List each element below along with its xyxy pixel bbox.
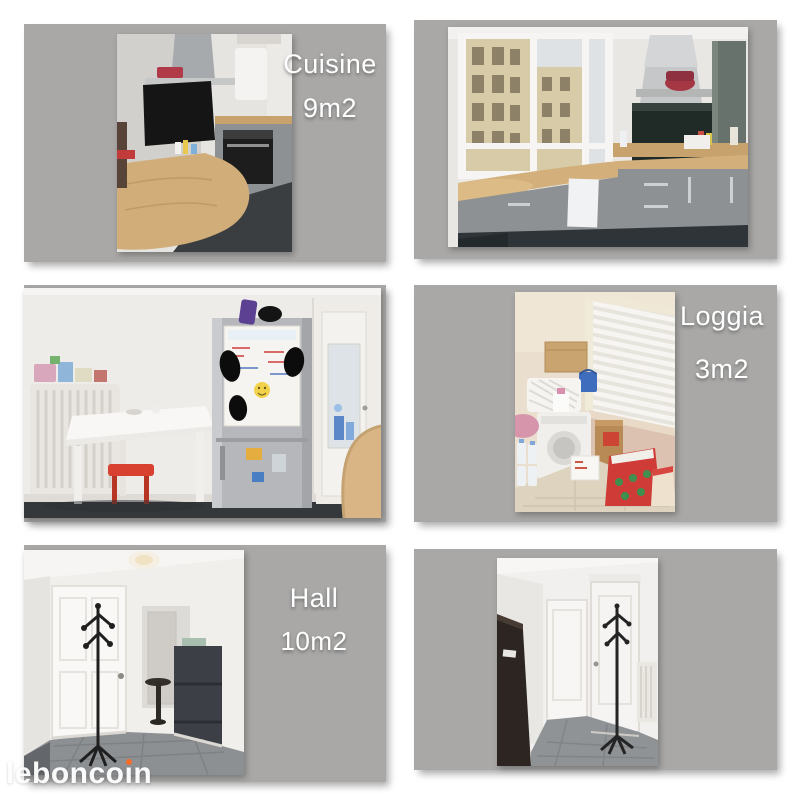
- cell-hall-2: [414, 549, 777, 770]
- room-name: Loggia: [680, 301, 764, 331]
- room-area: 9m2: [274, 95, 386, 122]
- room-name: Hall: [290, 583, 339, 613]
- cell-cuisine-2: [414, 20, 777, 259]
- room-name: Cuisine: [283, 49, 377, 79]
- hall-entrance-photo: [497, 558, 658, 766]
- label-loggia: Loggia 3m2: [672, 303, 772, 383]
- room-area: 3m2: [672, 356, 772, 383]
- kitchen-fridge-photo: [24, 288, 381, 518]
- cell-kitchen-dining: [24, 285, 386, 522]
- kitchen-counter-photo: [117, 34, 292, 252]
- cell-cuisine-1: Cuisine 9m2: [24, 24, 386, 262]
- cell-hall-1: Hall 10m2: [24, 545, 386, 782]
- watermark-text-end: n: [133, 757, 152, 790]
- watermark-text-start: lebonco: [6, 757, 125, 790]
- label-hall: Hall 10m2: [266, 585, 362, 654]
- brand-orange-dot-icon: [126, 759, 132, 765]
- cell-loggia: Loggia 3m2: [414, 285, 777, 522]
- room-area: 10m2: [266, 628, 362, 654]
- loggia-laundry-photo: [515, 292, 675, 512]
- leboncoin-watermark: leboncoın: [6, 757, 152, 791]
- photo-collage: Cuisine 9m2: [0, 0, 800, 800]
- kitchen-window-photo: [448, 27, 748, 247]
- hall-coatrack-photo: [24, 550, 244, 775]
- label-cuisine: Cuisine 9m2: [274, 51, 386, 122]
- watermark-letter-i: ı: [125, 757, 134, 791]
